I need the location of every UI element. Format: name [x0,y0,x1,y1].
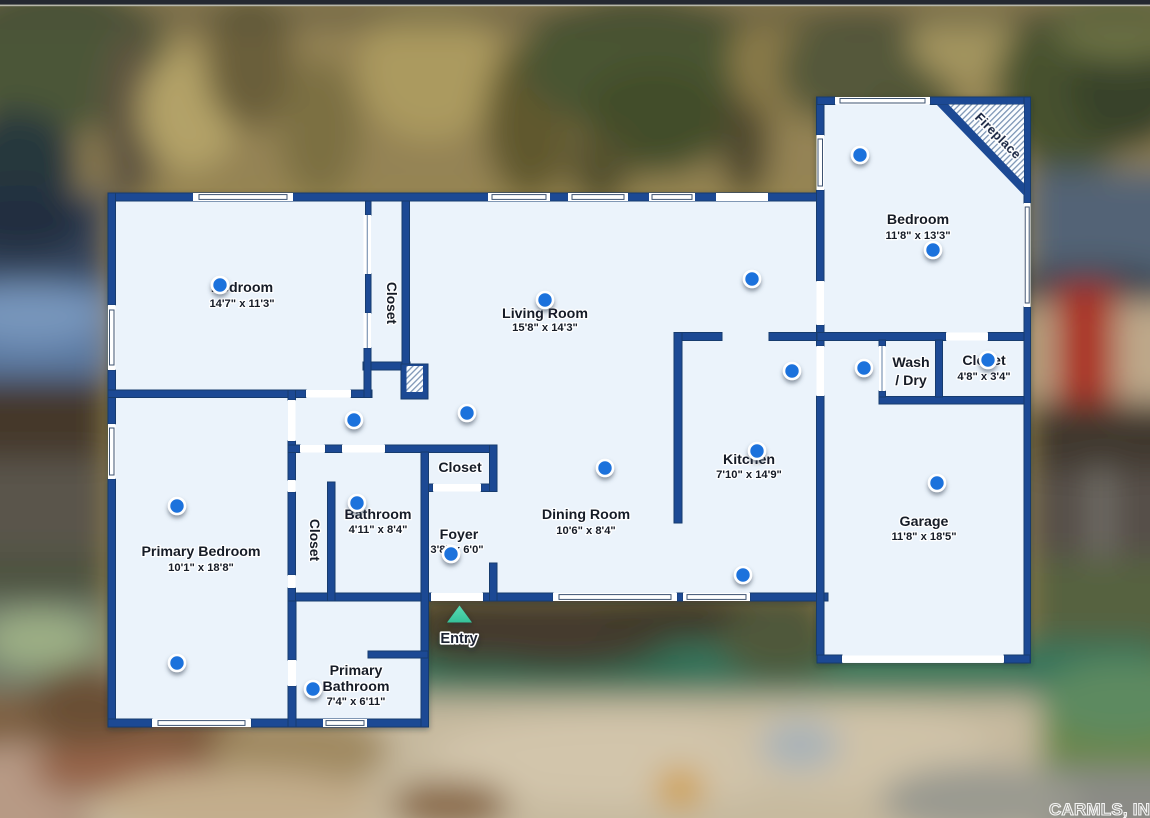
svg-text:/ Dry: / Dry [895,373,927,389]
svg-text:15'8" x 14'3": 15'8" x 14'3" [512,322,578,334]
svg-text:7'10" x 14'9": 7'10" x 14'9" [716,469,782,481]
svg-text:4'11" x 8'4": 4'11" x 8'4" [349,524,408,536]
svg-text:Entry: Entry [440,631,478,647]
svg-text:11'8" x 13'3": 11'8" x 13'3" [885,230,950,242]
svg-text:10'1" x 18'8": 10'1" x 18'8" [168,562,234,574]
svg-text:Bedroom: Bedroom [887,212,949,228]
svg-text:Closet: Closet [384,282,399,325]
svg-text:7'4" x 6'11": 7'4" x 6'11" [327,696,386,708]
svg-text:Garage: Garage [900,514,949,530]
svg-text:Dining Room: Dining Room [542,507,630,523]
svg-text:Primary: Primary [330,663,383,679]
svg-text:CARMLS, INC: CARMLS, INC [1049,800,1150,818]
svg-text:Wash: Wash [892,355,929,371]
svg-text:Primary Bedroom: Primary Bedroom [141,544,260,560]
svg-text:10'6" x 8'4": 10'6" x 8'4" [556,525,615,537]
svg-text:Bathroom: Bathroom [323,679,390,695]
svg-text:11'8" x 18'5": 11'8" x 18'5" [891,531,956,543]
svg-text:Closet: Closet [438,460,482,476]
svg-text:Foyer: Foyer [440,527,479,543]
svg-text:Closet: Closet [307,519,322,562]
svg-text:14'7" x 11'3": 14'7" x 11'3" [209,298,274,310]
svg-text:4'8" x 3'4": 4'8" x 3'4" [957,371,1010,383]
